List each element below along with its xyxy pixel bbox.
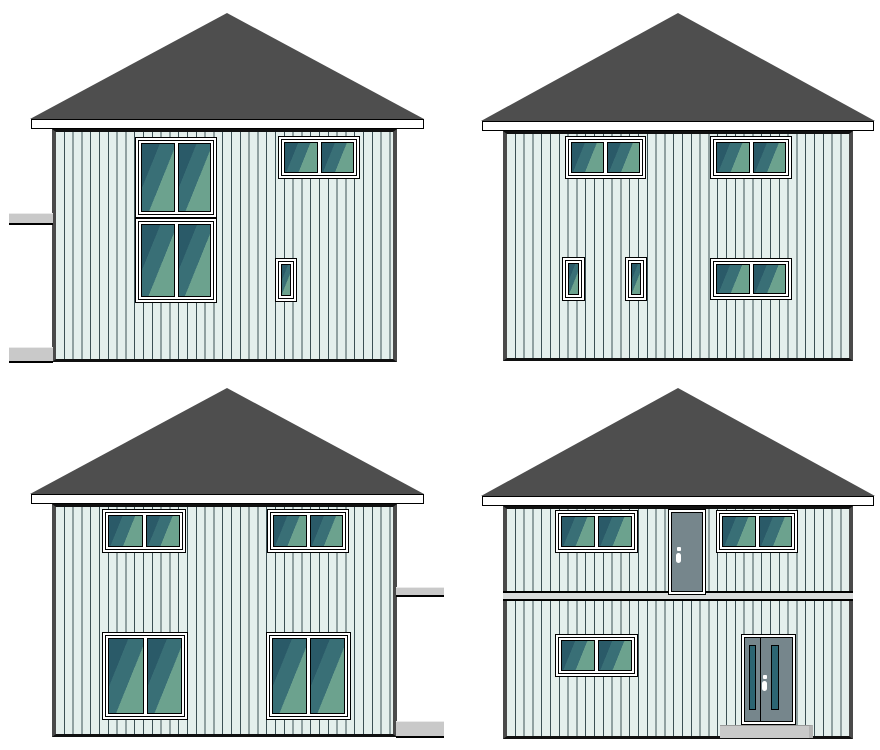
double-window-upper-right xyxy=(278,136,360,179)
window-frame xyxy=(713,261,789,297)
handle-dot xyxy=(677,547,681,551)
siding-wall xyxy=(503,131,853,361)
window-frame xyxy=(105,512,183,550)
glass-pane xyxy=(141,143,175,212)
window-frame xyxy=(281,139,357,176)
stacked-window-lower xyxy=(135,218,217,303)
window-frame xyxy=(628,260,644,298)
double-window-upper-left xyxy=(555,510,638,553)
large-window-lower-right xyxy=(266,632,351,720)
side-ledge-upper xyxy=(9,213,53,225)
glass-pane xyxy=(568,263,579,295)
front-entry-door xyxy=(741,634,796,725)
window-frame xyxy=(558,513,635,550)
house-elevation-bottom-right xyxy=(440,375,880,750)
door-handle-icon xyxy=(676,547,682,563)
window-frame xyxy=(105,635,185,717)
house-elevation-top-left xyxy=(0,0,440,375)
fascia-board xyxy=(31,119,424,129)
door-slab xyxy=(671,512,703,592)
window-frame xyxy=(719,513,795,550)
glass-pane xyxy=(607,142,640,173)
glass-pane xyxy=(561,640,595,671)
window-frame xyxy=(278,261,294,299)
glass-pane xyxy=(598,640,632,671)
glass-pane xyxy=(147,638,183,714)
glass-pane xyxy=(321,142,355,173)
double-window-upper-left xyxy=(565,136,646,179)
house-elevation-bottom-left xyxy=(0,375,440,750)
double-window-lower-left xyxy=(555,634,638,677)
handle-bar xyxy=(762,681,767,691)
double-window-upper-right xyxy=(710,136,792,179)
hipped-roof xyxy=(30,388,424,494)
window-frame xyxy=(565,260,582,298)
window-frame xyxy=(138,140,214,215)
glass-pane xyxy=(598,516,632,547)
large-window-lower-left xyxy=(102,632,188,720)
fascia-board xyxy=(482,496,874,506)
glass-pane xyxy=(272,638,307,714)
side-ledge-upper xyxy=(396,587,444,597)
window-frame xyxy=(558,637,635,674)
hipped-roof xyxy=(481,13,875,121)
side-ledge-lower xyxy=(9,347,53,363)
glass-pane xyxy=(753,264,787,294)
hipped-roof xyxy=(30,13,424,119)
hipped-roof xyxy=(481,388,875,496)
handle-bar xyxy=(676,553,681,563)
small-window-lower-left xyxy=(562,257,585,301)
fascia-board xyxy=(482,121,874,131)
glass-pane xyxy=(631,263,641,295)
glass-pane xyxy=(284,142,318,173)
side-ledge-lower xyxy=(396,721,444,738)
glass-pane xyxy=(716,142,750,173)
glass-pane xyxy=(759,516,793,547)
door-glass-panel xyxy=(749,645,756,710)
glass-pane xyxy=(273,515,307,547)
glass-pane xyxy=(281,264,291,296)
door-glass-panel xyxy=(771,645,779,710)
double-window-upper-right xyxy=(267,509,349,553)
balcony-door xyxy=(668,509,706,595)
glass-pane xyxy=(108,515,143,547)
door-leaf-split xyxy=(760,638,761,721)
glass-pane xyxy=(178,143,212,212)
glass-pane xyxy=(108,638,144,714)
double-window-upper-right xyxy=(716,510,798,553)
double-window-lower-right xyxy=(710,258,792,300)
glass-pane xyxy=(561,516,595,547)
glass-pane xyxy=(716,264,750,294)
door-slab xyxy=(744,637,793,722)
window-frame xyxy=(713,139,789,176)
glass-pane xyxy=(146,515,181,547)
glass-pane xyxy=(722,516,756,547)
double-window-upper-left xyxy=(102,509,186,553)
handle-dot xyxy=(763,675,767,679)
window-frame xyxy=(270,512,346,550)
house-elevation-top-right xyxy=(440,0,880,375)
small-window-lower-right xyxy=(275,258,297,302)
glass-pane xyxy=(310,638,345,714)
glass-pane xyxy=(141,224,175,297)
fascia-board xyxy=(31,494,424,504)
glass-pane xyxy=(571,142,604,173)
entry-step xyxy=(720,725,813,738)
glass-pane xyxy=(310,515,344,547)
window-frame xyxy=(138,221,214,300)
stacked-window-upper xyxy=(135,137,217,218)
glass-pane xyxy=(178,224,212,297)
small-window-lower-mid xyxy=(625,257,647,301)
window-frame xyxy=(269,635,348,717)
door-handle-icon xyxy=(762,675,768,691)
window-frame xyxy=(568,139,643,176)
glass-pane xyxy=(753,142,787,173)
elevation-sheet xyxy=(0,0,880,750)
